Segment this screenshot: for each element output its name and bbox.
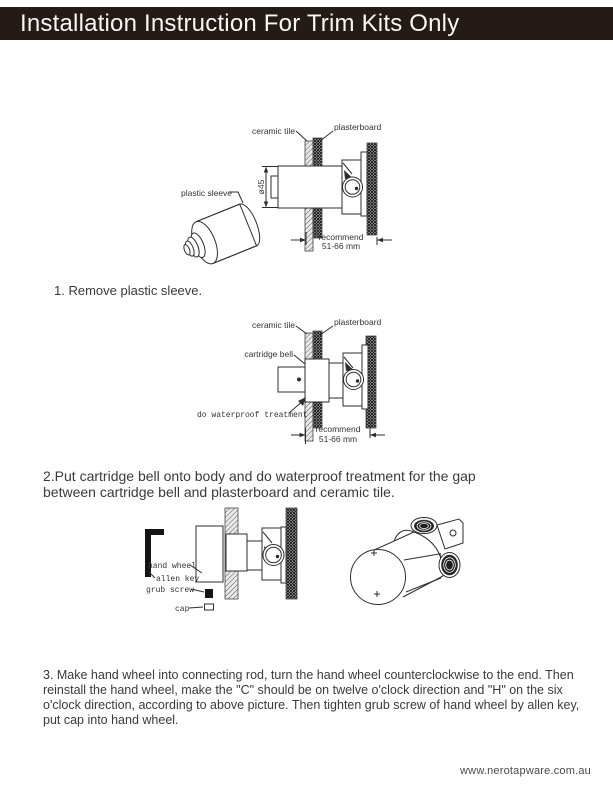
grub-screw-drawing	[205, 589, 213, 598]
cap-drawing	[205, 604, 214, 610]
plasterboard-label: plasterboard	[334, 122, 382, 132]
waterproof-note-label: do waterproof treatment	[197, 411, 307, 420]
cartridge-bell-label: cartridge bell	[244, 349, 293, 359]
hand-wheel-drawing	[196, 526, 223, 582]
recommend-value: 51-66 mm	[322, 241, 360, 251]
page-header-bar: Installation Instruction For Trim Kits O…	[0, 7, 613, 40]
grub-screw-label: grub screw	[146, 586, 194, 595]
ceramic-tile-label: ceramic tile	[252, 126, 295, 136]
valve-body-3d-drawing	[351, 518, 464, 605]
plastic-sleeve-drawing	[176, 201, 264, 272]
step-3-text: 3. Make hand wheel into connecting rod, …	[43, 668, 599, 728]
diagram-remove-plastic-sleeve: ø45 recommend 51-66 mm	[160, 115, 422, 263]
website-url: www.nerotapware.com.au	[460, 765, 591, 777]
step-1-text: 1. Remove plastic sleeve.	[54, 283, 202, 298]
plasterboard-label: plasterboard	[334, 317, 382, 327]
instruction-page: Installation Instruction For Trim Kits O…	[0, 0, 613, 793]
diagram-cartridge-bell: recommend 51-66 mm ceramic tile plasterb…	[190, 315, 422, 450]
cap-label: cap	[175, 605, 190, 614]
hand-wheel-label: hand wheel	[148, 562, 196, 571]
allen-key-label: allen key	[156, 575, 199, 584]
valve-body-section	[196, 526, 286, 583]
plastic-sleeve-label: plastic sleeve	[181, 188, 232, 198]
ceramic-tile-label: ceramic tile	[252, 320, 295, 330]
page-title: Installation Instruction For Trim Kits O…	[0, 7, 613, 40]
recommend-value: 51-66 mm	[319, 434, 357, 444]
recommend-label: recommend	[316, 424, 361, 434]
diagram-hand-wheel-assembly: hand wheel allen key grub screw cap	[120, 495, 516, 645]
diagram3-callouts: hand wheel allen key grub screw cap	[146, 562, 204, 614]
diameter-label: ø45	[256, 179, 266, 194]
